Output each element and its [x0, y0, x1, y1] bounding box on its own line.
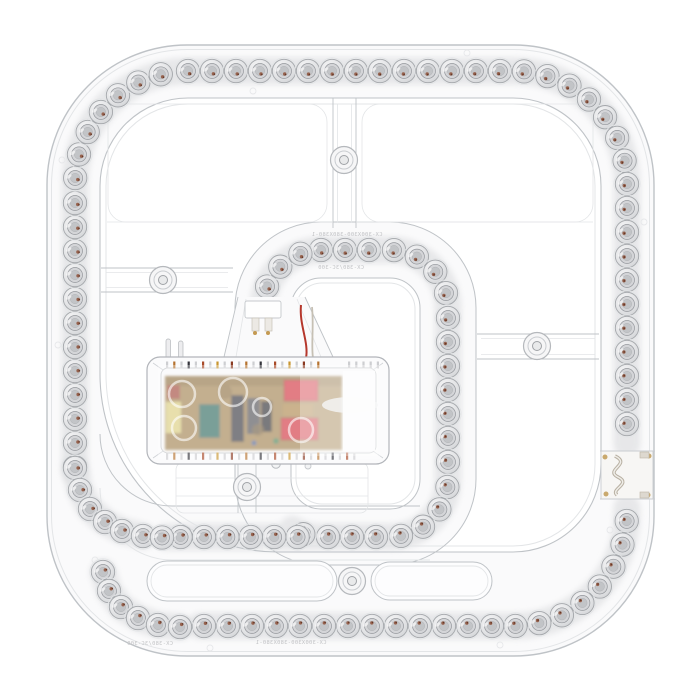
led-lens — [284, 524, 310, 550]
led-lens — [149, 524, 175, 550]
led-lens — [614, 195, 640, 221]
led-lens — [502, 613, 528, 639]
driver-unit — [147, 357, 389, 464]
led-lens — [433, 280, 459, 306]
marking-bottom-2: CX-380/3C-300 — [127, 641, 173, 647]
led-lens — [383, 613, 409, 639]
led-lens — [191, 613, 217, 639]
led-lens — [614, 387, 640, 413]
led-lens — [388, 523, 414, 549]
led-lens — [614, 411, 640, 437]
mounting-slot-1 — [147, 561, 337, 601]
led-lens — [335, 613, 361, 639]
led-lens — [62, 382, 88, 408]
led-lens — [239, 613, 265, 639]
wire-connector — [245, 301, 281, 318]
led-lens — [614, 315, 640, 341]
led-lens — [359, 613, 385, 639]
led-lens — [435, 329, 461, 355]
led-lens — [263, 613, 289, 639]
led-lens — [332, 237, 358, 263]
led-lens — [148, 61, 174, 87]
led-lens — [435, 305, 461, 331]
led-lens — [247, 58, 273, 84]
led-lens — [287, 241, 313, 267]
screw-boss-left — [150, 267, 177, 294]
led-lens — [62, 430, 88, 456]
led-lens — [431, 613, 457, 639]
led-lens — [367, 58, 393, 84]
led-lens — [62, 190, 88, 216]
led-lens — [62, 214, 88, 240]
led-lens — [407, 613, 433, 639]
led-lens — [410, 514, 436, 540]
led-lens — [435, 353, 461, 379]
led-lens — [614, 363, 640, 389]
connection-funnel — [224, 297, 333, 357]
led-lens — [339, 524, 365, 550]
led-lens — [319, 58, 345, 84]
led-lens — [356, 237, 382, 263]
led-lens — [614, 267, 640, 293]
led-lens — [315, 524, 341, 550]
led-lens — [109, 518, 135, 544]
led-lens — [62, 334, 88, 360]
led-lens — [167, 614, 193, 640]
led-lens — [343, 58, 369, 84]
led-lens — [435, 377, 461, 403]
led-lens — [614, 339, 640, 365]
led-lens — [614, 171, 640, 197]
led-lens — [614, 291, 640, 317]
led-lens — [214, 524, 240, 550]
led-lens — [435, 401, 461, 427]
led-lens — [215, 613, 241, 639]
marking-inner-top-2: CX-380/3C-300 — [318, 265, 364, 271]
screw-boss-top — [331, 147, 358, 174]
led-lens — [415, 58, 441, 84]
marking-bottom-1: CX-300X300-380X380-1 — [256, 640, 327, 646]
led-lens — [614, 243, 640, 269]
wire-splice — [600, 451, 655, 499]
led-lens — [614, 508, 640, 534]
screw-boss-slot — [339, 568, 366, 595]
led-lens — [62, 262, 88, 288]
led-lens — [611, 148, 637, 174]
screw-boss-right — [524, 333, 551, 360]
led-lens — [311, 613, 337, 639]
led-lens — [62, 310, 88, 336]
led-lens — [391, 58, 417, 84]
led-lens — [534, 63, 560, 89]
led-lens — [287, 613, 313, 639]
led-lens — [363, 524, 389, 550]
screw-boss-bottom — [234, 474, 261, 501]
led-lens — [439, 58, 465, 84]
led-lens — [435, 425, 461, 451]
led-lens — [62, 358, 88, 384]
product-photo: CX-300X300-380X380-1CX-380/3C-300CX-300X… — [0, 0, 700, 700]
led-lens — [463, 58, 489, 84]
led-lens — [175, 58, 201, 84]
led-lens — [62, 406, 88, 432]
led-lens — [604, 125, 630, 151]
led-lens — [526, 610, 552, 636]
led-lens — [295, 58, 321, 84]
led-lens — [455, 613, 481, 639]
led-lens — [271, 58, 297, 84]
led-lens — [238, 524, 264, 550]
led-lens — [62, 286, 88, 312]
led-lens — [381, 237, 407, 263]
led-lens — [435, 449, 461, 475]
led-lens — [261, 524, 287, 550]
mounting-slot-2 — [371, 562, 492, 600]
led-lens — [487, 58, 513, 84]
led-lens — [223, 58, 249, 84]
frosted-lid — [158, 365, 380, 459]
led-lens — [479, 613, 505, 639]
led-module-photo: CX-300X300-380X380-1CX-380/3C-300CX-300X… — [0, 0, 700, 700]
led-lens — [191, 524, 217, 550]
led-lens — [511, 58, 537, 84]
led-lens — [614, 219, 640, 245]
led-lens — [62, 238, 88, 264]
plastic-frame — [47, 45, 654, 656]
led-lens — [62, 165, 88, 191]
led-lens — [199, 58, 225, 84]
